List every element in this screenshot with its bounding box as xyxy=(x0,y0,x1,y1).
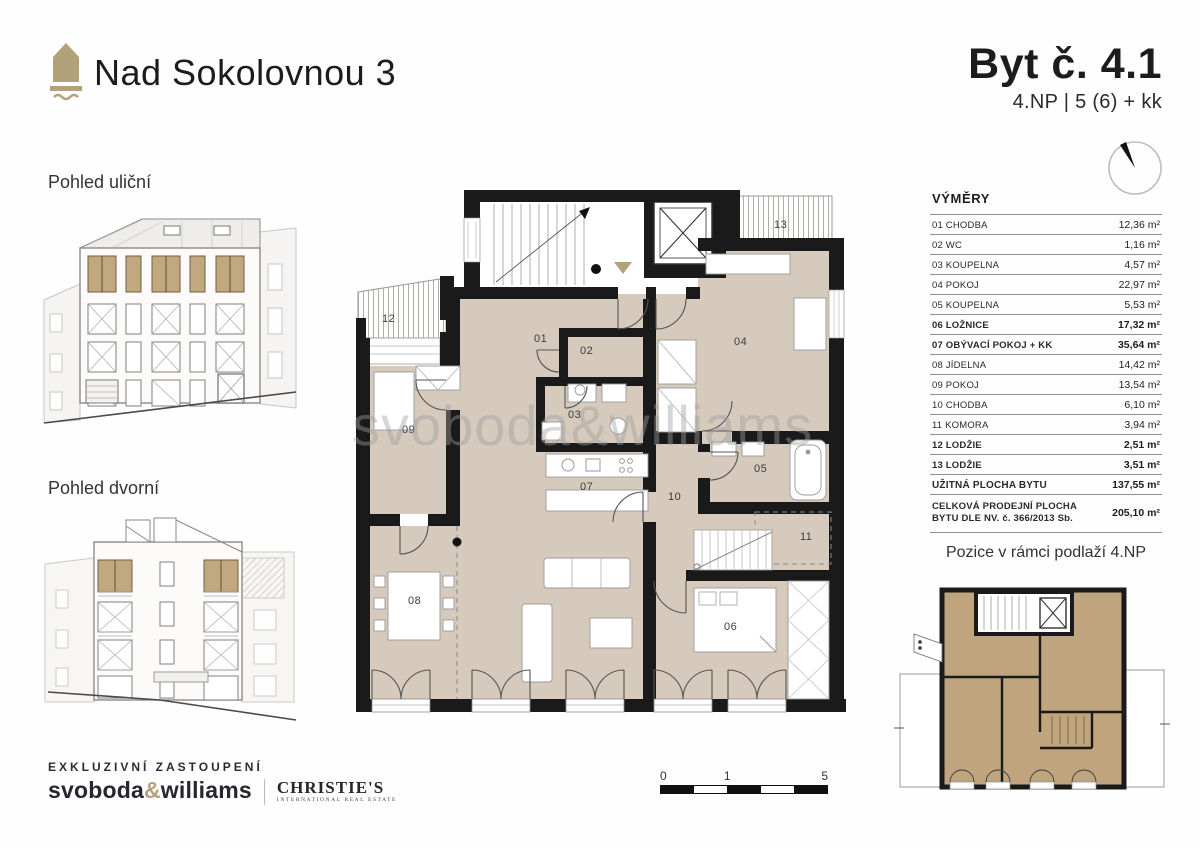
table-row: 10 CHODBA6,10 m² xyxy=(930,394,1162,414)
street-elevation-drawing xyxy=(42,204,298,442)
scale-bar: 0 1 5 xyxy=(660,769,828,794)
room-label-06: 06 xyxy=(724,621,737,633)
room-label-11: 11 xyxy=(800,531,812,543)
table-row: 01 CHODBA12,36 m² xyxy=(930,214,1162,234)
room-label-04: 04 xyxy=(734,336,747,348)
scale-bar-segments xyxy=(660,785,828,794)
brand-logo-icon xyxy=(46,40,86,102)
unit-spec: 4.NP | 5 (6) + kk xyxy=(968,91,1162,114)
stair-window xyxy=(464,218,480,262)
main-facade xyxy=(80,219,260,406)
project-title: Nad Sokolovnou 3 xyxy=(94,52,396,94)
room-label-09: 09 xyxy=(402,424,415,436)
street-view-caption: Pohled uliční xyxy=(48,172,151,193)
svoboda-williams-logo: svoboda&williams xyxy=(48,779,252,802)
position-plan xyxy=(892,582,1170,808)
table-row: 09 POKOJ13,54 m² xyxy=(930,374,1162,394)
scale-bar-labels: 0 1 5 xyxy=(660,769,828,783)
brand-row: svoboda&williams CHRISTIE'S INTERNATIONA… xyxy=(48,779,397,805)
loggia-12 xyxy=(356,276,454,368)
room-label-07: 07 xyxy=(580,481,593,493)
table-row: 11 KOMORA3,94 m² xyxy=(930,414,1162,434)
christies-logo: CHRISTIE'S INTERNATIONAL REAL ESTATE xyxy=(277,779,397,804)
table-row: 12 LODŽIE2,51 m² xyxy=(930,434,1162,454)
courtyard-facade xyxy=(94,518,242,700)
areas-table-title: VÝMĚRY xyxy=(930,191,1162,214)
position-caption: Pozice v rámci podlaží 4.NP xyxy=(928,544,1164,562)
room-label-10: 10 xyxy=(668,491,681,503)
logo-divider xyxy=(264,779,265,805)
unit-floor-windows xyxy=(88,256,244,292)
unit-header: Byt č. 4.1 4.NP | 5 (6) + kk xyxy=(968,40,1162,114)
table-row: 04 POKOJ22,97 m² xyxy=(930,274,1162,294)
table-row: 08 JÍDELNA14,42 m² xyxy=(930,354,1162,374)
areas-table: VÝMĚRY 01 CHODBA12,36 m² 02 WC1,16 m² 03… xyxy=(930,191,1162,533)
room-label-12: 12 xyxy=(382,313,395,325)
courtyard-elevation-drawing xyxy=(42,506,298,738)
table-row: 02 WC1,16 m² xyxy=(930,234,1162,254)
table-row: 03 KOUPELNA4,57 m² xyxy=(930,254,1162,274)
room-label-05: 05 xyxy=(754,463,767,475)
unit-number: Byt č. 4.1 xyxy=(968,40,1162,89)
floor-plan: 01 02 03 04 05 06 07 08 09 10 11 12 13 xyxy=(356,190,846,714)
room-label-08: 08 xyxy=(408,595,421,607)
exclusive-caption: EXKLUZIVNÍ ZASTOUPENÍ xyxy=(48,760,263,774)
table-total-row: UŽITNÁ PLOCHA BYTU137,55 m² xyxy=(930,474,1162,494)
table-total-row: CELKOVÁ PRODEJNÍ PLOCHA BYTU DLE NV. č. … xyxy=(930,494,1162,532)
room-label-03: 03 xyxy=(568,409,581,421)
entrance-dot xyxy=(591,264,601,274)
table-row: 13 LODŽIE3,51 m² xyxy=(930,454,1162,474)
room-label-02: 02 xyxy=(580,345,593,357)
table-row: 07 OBÝVACÍ POKOJ + KK35,64 m² xyxy=(930,334,1162,354)
mini-ramp xyxy=(914,634,942,662)
floorplan-sheet: Nad Sokolovnou 3 Byt č. 4.1 4.NP | 5 (6)… xyxy=(0,0,1200,848)
mini-core xyxy=(976,592,1072,634)
table-row: 05 KOUPELNA5,53 m² xyxy=(930,294,1162,314)
table-row: 06 LOŽNICE17,32 m² xyxy=(930,314,1162,334)
room-label-13: 13 xyxy=(774,219,787,231)
areas-table-body: 01 CHODBA12,36 m² 02 WC1,16 m² 03 KOUPEL… xyxy=(930,214,1162,533)
courtyard-view-caption: Pohled dvorní xyxy=(48,478,159,499)
stairwell xyxy=(480,202,644,287)
room-label-01: 01 xyxy=(534,333,547,345)
room04-window xyxy=(829,290,844,338)
ampersand: & xyxy=(144,777,161,803)
